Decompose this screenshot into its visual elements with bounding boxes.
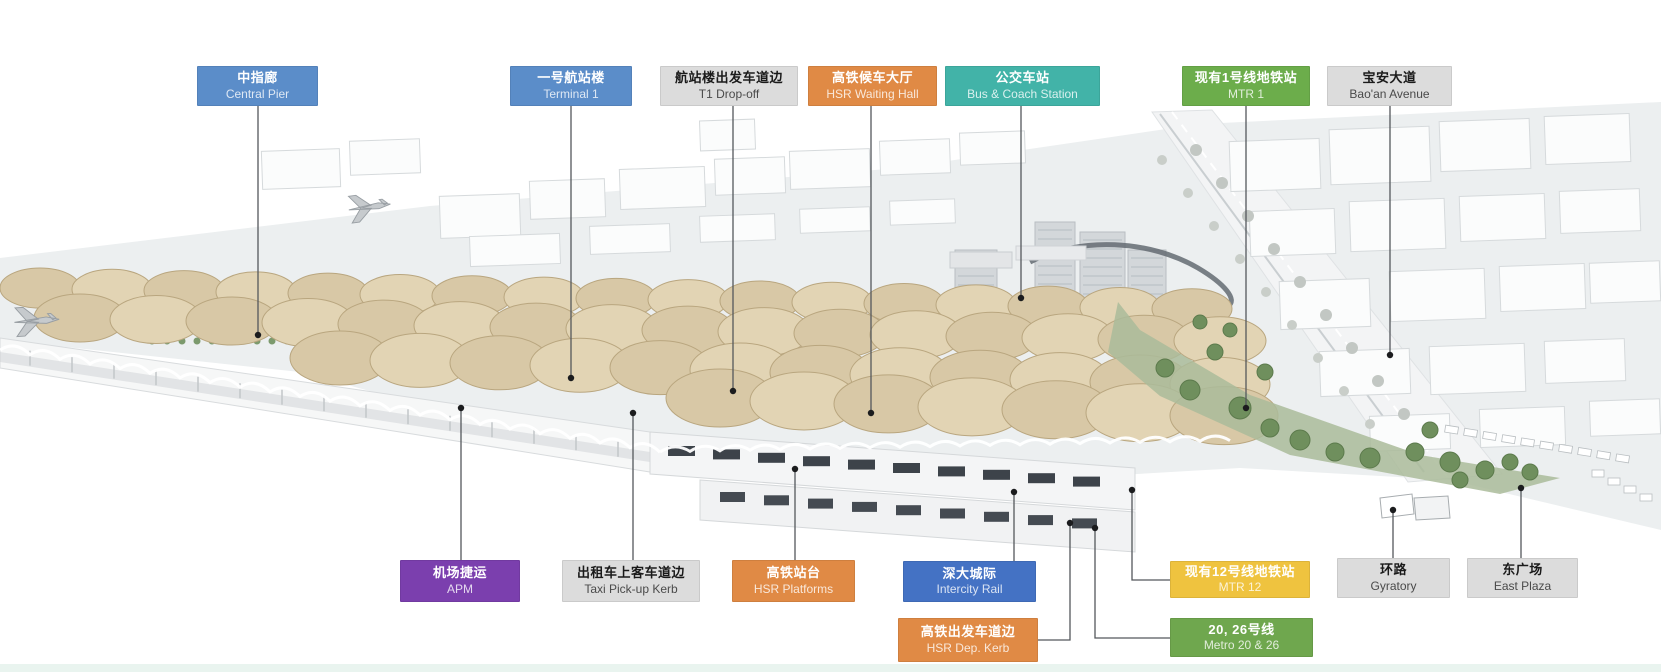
tree [1522,464,1538,480]
street-tree [1235,254,1245,264]
street-tree [1346,342,1358,354]
street-tree [1190,144,1202,156]
street-tree [1183,188,1193,198]
deck-opening [1073,477,1100,487]
street-tree [1209,221,1219,231]
city-block [1589,261,1660,303]
city-block [619,167,705,210]
city-block [1329,126,1431,184]
city-block [700,214,776,243]
station-plaza-deck [1016,246,1086,260]
label-english-text: HSR Waiting Hall [826,87,918,102]
city-block [789,149,870,190]
city-block [1249,209,1336,257]
city-block [1499,264,1586,312]
city-block [1429,343,1526,394]
label-english-text: Terminal 1 [543,87,598,102]
street-tree [1268,243,1280,255]
tree [1261,419,1279,437]
label-bus-coach-station: 公交车站 Bus & Coach Station [945,66,1100,106]
parked-car [1592,470,1604,477]
label-t1-drop-off: 航站楼出发车道边 T1 Drop-off [660,66,798,106]
parked-car [1624,486,1636,493]
street-tree [1372,375,1384,387]
city-block [879,139,950,175]
footer-accent-bar [0,664,1661,672]
label-english-text: Bus & Coach Station [967,87,1078,102]
label-chinese-text: 东广场 [1502,562,1543,578]
tree [1223,323,1237,337]
parked-car [1483,432,1497,441]
deck-opening [803,456,830,466]
city-block [529,179,605,220]
parked-car [1559,444,1573,453]
tree [1422,422,1438,438]
tree [1360,448,1380,468]
label-english-text: Intercity Rail [936,582,1002,597]
deck-opening [940,509,965,519]
street-tree [1242,210,1254,222]
label-english-text: APM [447,582,473,597]
deck-opening [713,449,740,459]
label-chinese-text: 航站楼出发车道边 [675,70,783,86]
tree [1476,461,1494,479]
tree [1452,472,1468,488]
deck-opening [984,512,1009,522]
bus-station-canopy [950,252,1012,268]
label-english-text: Central Pier [226,87,289,102]
label-chinese-text: 中指廊 [237,70,278,86]
label-intercity-rail: 深大城际 Intercity Rail [903,561,1036,602]
label-english-text: Metro 20 & 26 [1204,638,1279,653]
tree [1257,364,1273,380]
parked-car [1578,448,1592,457]
deck-opening [983,470,1010,480]
label-english-text: East Plaza [1494,579,1551,594]
label-english-text: HSR Dep. Kerb [927,641,1010,656]
label-east-plaza: 东广场 East Plaza [1467,558,1578,598]
parked-car [1640,494,1652,501]
parked-car [1464,428,1478,437]
street-tree [1216,177,1228,189]
label-hsr-waiting-hall: 高铁候车大厅 HSR Waiting Hall [808,66,937,106]
deck-opening [758,453,785,463]
tree [1156,359,1174,377]
tree [1180,380,1200,400]
deck-opening [764,495,789,505]
city-block [1229,138,1321,191]
label-english-text: HSR Platforms [754,582,833,597]
deck-opening [1028,473,1055,483]
city-block [1319,348,1411,396]
deck-opening [848,460,875,470]
label-mtr-1: 现有1号线地铁站 MTR 1 [1182,66,1310,106]
city-block [890,199,956,225]
city-block [470,233,561,266]
label-central-pier: 中指廊 Central Pier [197,66,318,106]
label-english-text: MTR 1 [1228,87,1264,102]
city-block [1459,194,1546,242]
label-taxi-pickup-kerb: 出租车上客车道边 Taxi Pick-up Kerb [562,560,700,602]
label-chinese-text: 公交车站 [995,70,1049,86]
gyratory-structure [1380,494,1414,518]
street-tree [1287,320,1297,330]
street-tree [1398,408,1410,420]
city-block [439,194,520,239]
city-block [590,224,671,255]
parked-car [1521,438,1535,447]
tree [1229,397,1251,419]
parked-car [1608,478,1620,485]
gyratory-structure [1414,496,1450,520]
street-tree [1320,309,1332,321]
label-chinese-text: 深大城际 [942,566,996,582]
city-block [1559,189,1640,234]
city-block [1349,198,1446,251]
parked-car [1502,435,1516,444]
deck-opening [896,505,921,515]
street-tree [1157,155,1167,165]
label-chinese-text: 机场捷运 [433,565,487,581]
label-gyratory: 环路 Gyratory [1337,558,1450,598]
label-chinese-text: 一号航站楼 [537,70,605,86]
label-chinese-text: 出租车上客车道边 [577,565,685,581]
label-terminal-1: 一号航站楼 Terminal 1 [510,66,632,106]
label-apm: 机场捷运 APM [400,560,520,602]
city-block [959,131,1025,165]
label-hsr-dep-kerb: 高铁出发车道边 HSR Dep. Kerb [898,618,1038,662]
deck-opening [720,492,745,502]
city-block [1544,339,1625,384]
label-chinese-text: 高铁出发车道边 [921,624,1016,640]
label-chinese-text: 现有12号线地铁站 [1185,564,1295,580]
label-english-text: MTR 12 [1219,580,1262,595]
street-tree [1294,276,1306,288]
city-block [261,149,340,190]
city-block [800,207,871,233]
street-tree [1365,419,1375,429]
city-block [1589,399,1660,436]
parked-car [1597,451,1611,460]
tree [1406,443,1424,461]
city-block [714,157,785,195]
street-tree [1261,287,1271,297]
airport-site-plan-figure: 中指廊 Central Pier 一号航站楼 Terminal 1 航站楼出发车… [0,0,1661,672]
label-chinese-text: 20, 26号线 [1208,622,1274,638]
street-tree [1339,386,1349,396]
label-chinese-text: 环路 [1380,562,1407,578]
label-baoan-avenue: 宝安大道 Bao'an Avenue [1327,66,1452,106]
deck-opening [1072,518,1097,528]
deck-opening [938,466,965,476]
label-english-text: T1 Drop-off [699,87,759,102]
label-chinese-text: 现有1号线地铁站 [1195,70,1297,86]
parked-car [1616,454,1630,463]
deck-opening [808,499,833,509]
label-chinese-text: 高铁站台 [766,565,820,581]
street-tree [1313,353,1323,363]
city-block [1439,118,1531,171]
tree [1193,315,1207,329]
label-english-text: Taxi Pick-up Kerb [584,582,677,597]
tree [1290,430,1310,450]
tree [1207,344,1223,360]
parked-car [1445,425,1459,434]
label-english-text: Bao'an Avenue [1349,87,1429,102]
label-chinese-text: 高铁候车大厅 [832,70,913,86]
city-block [1389,268,1486,321]
label-mtr-12: 现有12号线地铁站 MTR 12 [1170,561,1310,598]
deck-opening [1028,515,1053,525]
tree [1440,452,1460,472]
city-block [699,119,755,151]
city-block [1544,114,1631,165]
label-english-text: Gyratory [1370,579,1416,594]
label-chinese-text: 宝安大道 [1362,70,1416,86]
label-hsr-platforms: 高铁站台 HSR Platforms [732,560,855,602]
tree [1326,443,1344,461]
parked-car [1540,441,1554,450]
deck-opening [893,463,920,473]
city-block [349,139,420,175]
tree [1502,454,1518,470]
deck-opening [852,502,877,512]
label-metro-20-26: 20, 26号线 Metro 20 & 26 [1170,618,1313,657]
